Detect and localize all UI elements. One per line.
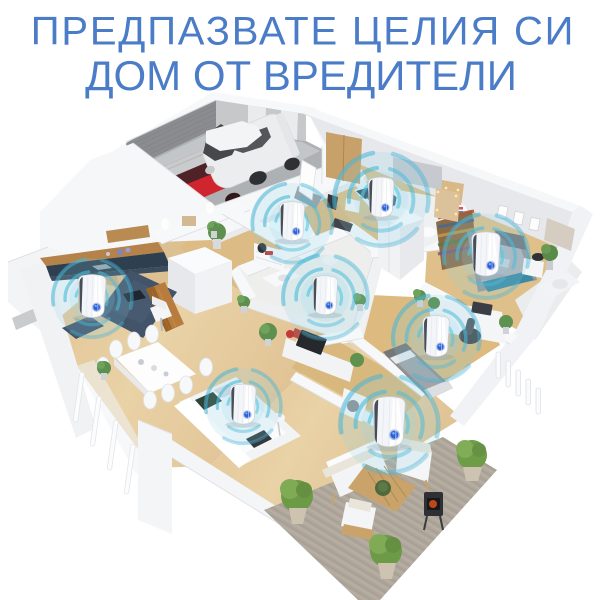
svg-text:ДОМ ОТ ВРЕДИТЕЛИ: ДОМ ОТ ВРЕДИТЕЛИ: [85, 52, 517, 99]
svg-text:ПРЕДПАЗВАТЕ ЦЕЛИЯ СИ: ПРЕДПАЗВАТЕ ЦЕЛИЯ СИ: [31, 10, 575, 54]
